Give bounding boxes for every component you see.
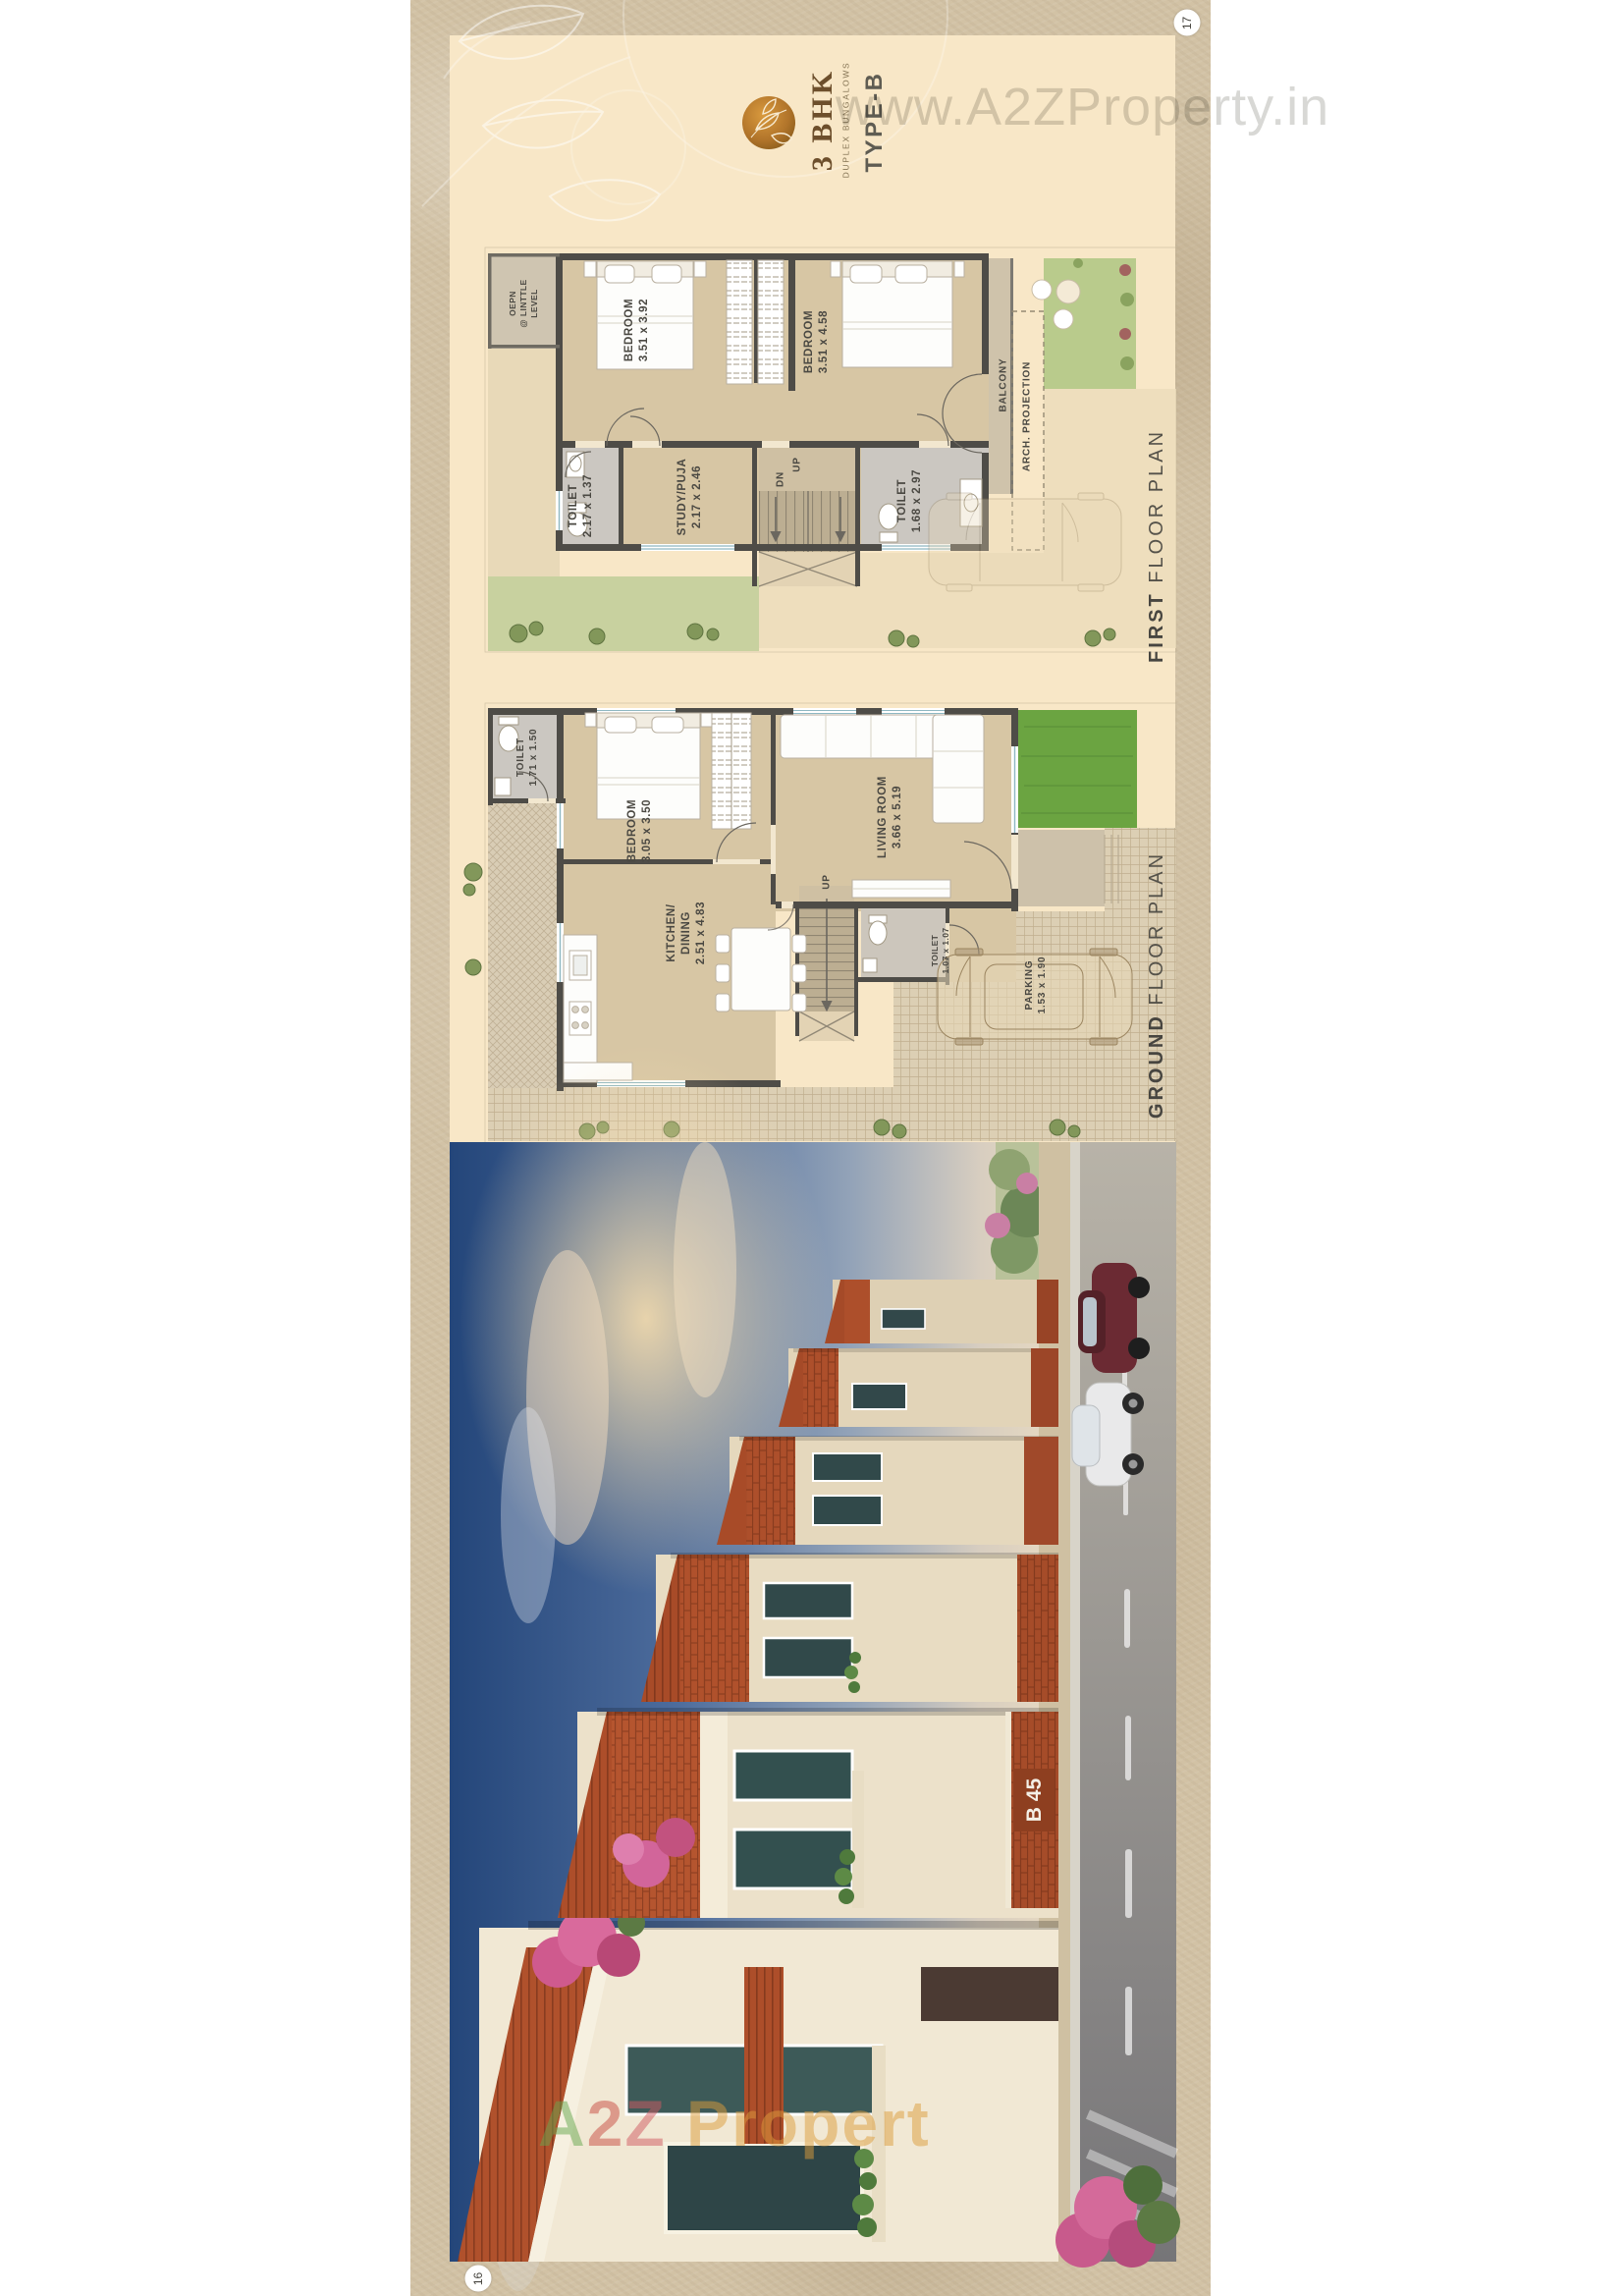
label-gf-living-room: LIVING ROOM 3.66 x 5.19: [876, 776, 905, 858]
brochure-screenshot: B 45 3 BHK DUPLEX BUNGALOWS TYP: [0, 0, 1623, 2296]
watermark-letter-2: 2: [587, 2087, 625, 2159]
label-gf-kitchen-dining: KITCHEN/ DINING 2.51 x 4.83: [665, 902, 710, 964]
label-ff-toilet-left: TOILET 2.17 x 1.37: [567, 474, 596, 537]
page-number-bottom: 16: [465, 2266, 492, 2292]
label-ff-bedroom-left: BEDROOM 3.51 x 3.92: [622, 299, 652, 361]
page-number-top: 17: [1174, 10, 1201, 36]
label-gf-parking: PARKING 1.53 x 1.90: [1023, 957, 1049, 1014]
first-floor-plan-drawing: [485, 247, 1176, 652]
site-watermark-top: www.A2ZProperty.in: [836, 77, 1329, 137]
label-gf-bedroom: BEDROOM 3.05 x 3.50: [625, 799, 655, 862]
label-gf-stairs-up: UP: [820, 874, 833, 890]
first-floor-ghost-car: [929, 493, 1121, 591]
caption-ground-floor-plan: GROUND FLOOR PLAN: [1144, 851, 1169, 1119]
label-ff-bedroom-right: BEDROOM 3.51 x 4.58: [802, 310, 832, 373]
house-number-sign: B 45: [1023, 1778, 1046, 1823]
caption-first-floor-plan: FIRST FLOOR PLAN: [1144, 429, 1169, 663]
label-gf-toilet-small: TOILET 1.07 x 1.07: [930, 928, 951, 974]
label-ff-study-puja: STUDY/PUJA 2.17 x 2.46: [676, 459, 705, 536]
label-open-lintel-level: OEPN @ LINTTLE LEVEL: [508, 279, 541, 327]
site-watermark-render: A2Z Propert: [538, 2086, 931, 2160]
label-ff-balcony: BALCONY: [997, 357, 1009, 411]
watermark-letter-a: A: [538, 2087, 587, 2159]
logo-emblem: [742, 96, 795, 149]
label-ff-stairs-dn: DN: [774, 471, 786, 487]
label-ff-stairs-up: UP: [790, 457, 803, 472]
watermark-letter-z: Z: [624, 2087, 666, 2159]
label-gf-toilet: TOILET 1.71 x 1.50: [514, 729, 540, 787]
label-ff-arch-projection: ARCH. PROJECTION: [1020, 361, 1033, 471]
label-ff-toilet-right: TOILET 1.68 x 2.97: [895, 469, 925, 532]
watermark-rest: Propert: [667, 2087, 931, 2159]
